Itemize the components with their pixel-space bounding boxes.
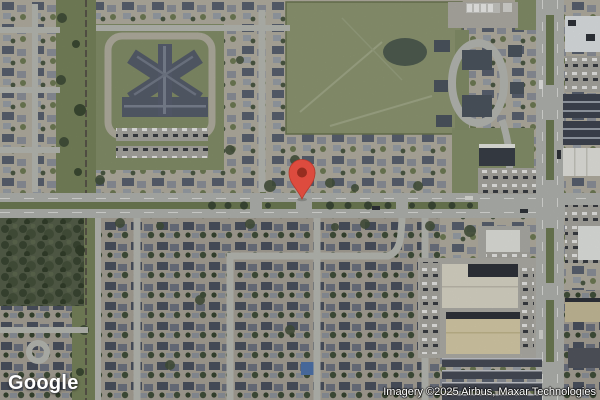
marker-inner-dot bbox=[297, 168, 307, 178]
google-logo[interactable]: Google bbox=[8, 372, 79, 395]
map-canvas[interactable]: Google Imagery ©2025 Airbus, Maxar Techn… bbox=[0, 0, 600, 400]
satellite-imagery bbox=[0, 0, 600, 400]
map-attribution: Imagery ©2025 Airbus, Maxar Technologies bbox=[383, 386, 596, 398]
